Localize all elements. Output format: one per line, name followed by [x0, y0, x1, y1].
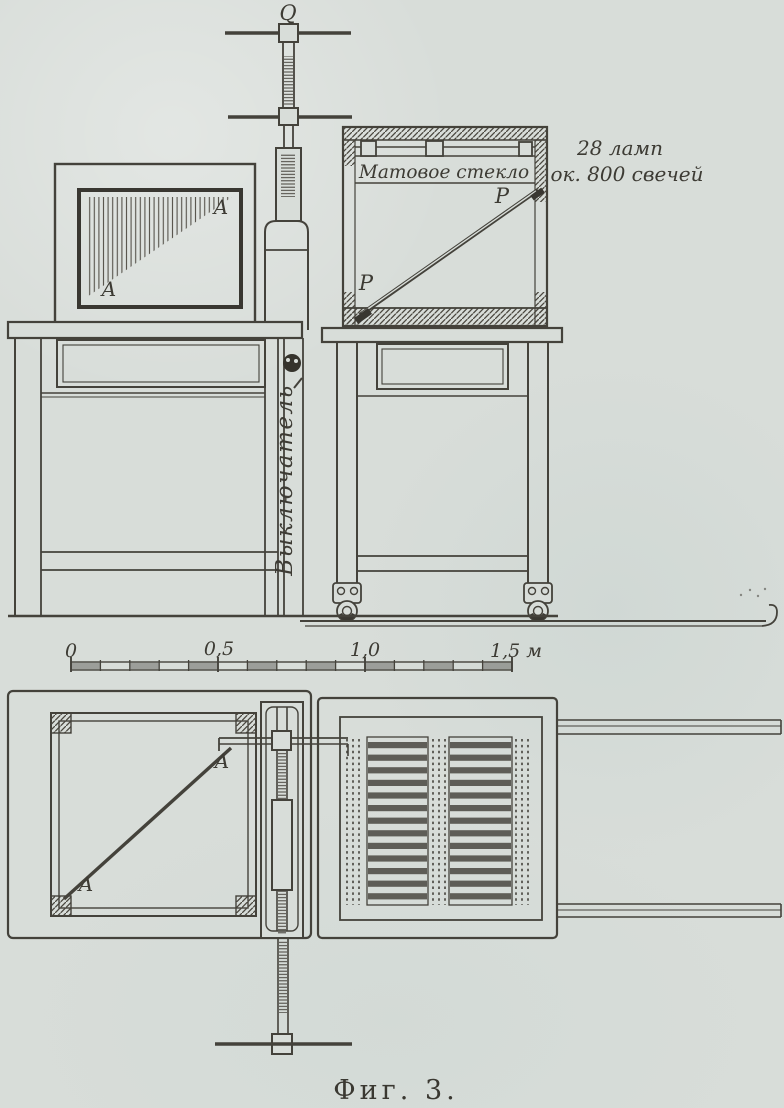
rod-nut	[272, 731, 291, 750]
plan-label-a-bottom: A	[77, 872, 93, 896]
right-tabletop	[322, 328, 562, 342]
figure-caption: Фиг. 3.	[333, 1075, 458, 1106]
frosted-glass-label: Матовое стекло	[358, 162, 529, 183]
scale-tick-15: 1,5 м	[490, 640, 542, 662]
figure-drawing: Q A A Матовое стекло P P 28 ламп ок. 800…	[0, 0, 784, 1108]
corner-clamp	[51, 896, 71, 916]
corner-clamp	[236, 713, 256, 733]
plan-label-a-top: A	[213, 749, 229, 773]
plan-view	[8, 691, 781, 1054]
scale-bar	[71, 657, 512, 672]
switch-label: Выключатель	[272, 384, 298, 576]
plan-rails	[557, 720, 781, 917]
lamp-socket	[426, 141, 443, 156]
plan-lamp-box	[318, 698, 557, 938]
rod-label-p-bottom: P	[358, 271, 374, 295]
lamp-slats-right	[450, 742, 511, 899]
left-table	[8, 322, 302, 616]
scanned-figure-page: Q A A Матовое стекло P P 28 ламп ок. 800…	[0, 0, 784, 1108]
lamps-note-line1: 28 ламп	[576, 136, 663, 160]
lamps-note-line2: ок. 800 свечей	[550, 162, 703, 186]
right-table-drawer	[377, 344, 508, 389]
support-column	[265, 221, 308, 330]
corner-clamp	[236, 896, 256, 916]
lamp-socket	[519, 142, 532, 156]
screw-label-q: Q	[279, 1, 296, 25]
scale-tick-05: 0,5	[204, 638, 234, 660]
screen-label-a-top: A	[212, 195, 228, 219]
adjusting-screw	[225, 24, 352, 221]
left-table-drawer	[57, 340, 265, 387]
left-tabletop	[8, 322, 302, 338]
lamp-slats-left	[368, 742, 427, 899]
lamp-box-bottom-band	[343, 308, 547, 326]
rod-label-p-top: P	[494, 184, 510, 208]
scale-tick-0: 0	[65, 640, 77, 662]
lamp-socket	[361, 141, 376, 156]
right-table	[322, 328, 562, 621]
lamp-box	[343, 127, 547, 326]
floor-and-rail	[8, 588, 777, 626]
scale-tick-10: 1,0	[350, 639, 380, 661]
rail-end-curl	[762, 605, 777, 626]
plan-column-cylinder	[272, 800, 292, 890]
screen-label-a-bottom: A	[100, 277, 116, 301]
lamp-box-top-band	[343, 127, 547, 140]
switch-knob	[283, 354, 301, 372]
plan-screw-below	[215, 938, 352, 1054]
corner-clamp	[51, 713, 71, 733]
test-screen	[55, 164, 255, 324]
elevation-view	[8, 24, 777, 626]
